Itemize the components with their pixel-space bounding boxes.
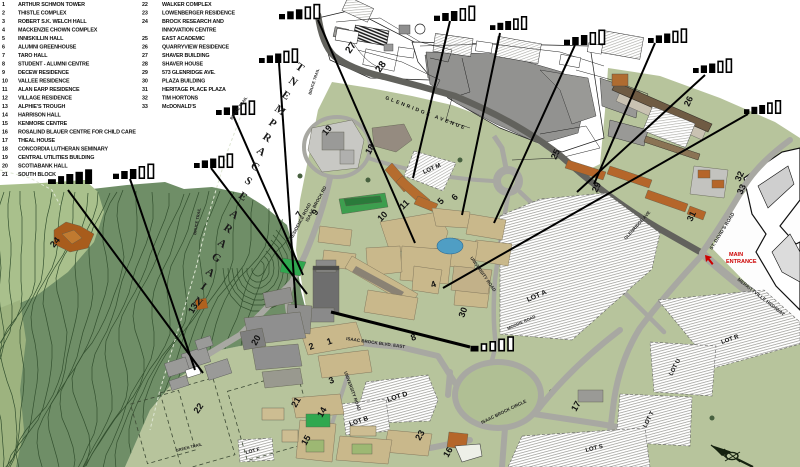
svg-text:HERITAGE PLACE PLAZA: HERITAGE PLACE PLAZA	[162, 87, 226, 93]
svg-text:28: 28	[142, 61, 148, 67]
svg-text:THEAL HOUSE: THEAL HOUSE	[18, 138, 55, 144]
svg-text:18: 18	[2, 146, 8, 152]
svg-text:ALPHIE'S TROUGH: ALPHIE'S TROUGH	[18, 104, 66, 110]
svg-text:4: 4	[2, 27, 5, 33]
svg-text:QUARRYVIEW RESIDENCE: QUARRYVIEW RESIDENCE	[162, 44, 229, 50]
svg-text:CENTRAL UTILITIES BUILDING: CENTRAL UTILITIES BUILDING	[18, 155, 94, 161]
svg-text:32: 32	[142, 95, 148, 101]
svg-text:INNOVATION CENTRE: INNOVATION CENTRE	[162, 27, 217, 33]
svg-text:ALUMNI GREENHOUSE: ALUMNI GREENHOUSE	[18, 44, 77, 50]
svg-text:ALAN EARP RESIDENCE: ALAN EARP RESIDENCE	[18, 87, 80, 93]
svg-text:THISTLE COMPLEX: THISTLE COMPLEX	[18, 10, 67, 16]
svg-text:3: 3	[2, 19, 5, 25]
svg-text:TIM HORTONS: TIM HORTONS	[162, 95, 199, 101]
svg-text:2: 2	[2, 10, 5, 16]
svg-text:DECEW RESIDENCE: DECEW RESIDENCE	[18, 70, 69, 76]
svg-text:6: 6	[2, 44, 5, 50]
svg-text:EAST ACADEMIC: EAST ACADEMIC	[162, 36, 205, 42]
svg-text:17: 17	[2, 138, 8, 144]
svg-text:TARO HALL: TARO HALL	[18, 53, 48, 59]
svg-text:27: 27	[142, 53, 148, 59]
svg-text:ROBERT S.K. WELCH HALL: ROBERT S.K. WELCH HALL	[18, 19, 87, 25]
svg-text:INNISKILLIN HALL: INNISKILLIN HALL	[18, 36, 64, 42]
svg-text:14: 14	[2, 112, 8, 118]
svg-text:13: 13	[2, 104, 8, 110]
svg-text:25: 25	[142, 36, 148, 42]
svg-text:SCOTIABANK HALL: SCOTIABANK HALL	[18, 163, 68, 169]
svg-text:VALLEE RESIDENCE: VALLEE RESIDENCE	[18, 78, 70, 84]
svg-text:31: 31	[142, 87, 148, 93]
svg-text:11: 11	[2, 87, 8, 93]
svg-text:10: 10	[2, 78, 8, 84]
svg-text:21: 21	[2, 172, 8, 178]
svg-text:BROCK RESEARCH AND: BROCK RESEARCH AND	[162, 19, 224, 25]
svg-text:5: 5	[2, 36, 5, 42]
svg-text:WALKER COMPLEX: WALKER COMPLEX	[162, 2, 212, 8]
svg-text:24: 24	[142, 19, 148, 25]
svg-text:McDONALD'S: McDONALD'S	[162, 104, 196, 110]
svg-text:HARRISON HALL: HARRISON HALL	[18, 112, 62, 118]
svg-text:16: 16	[2, 129, 8, 135]
svg-text:ARTHUR SCHMON TOWER: ARTHUR SCHMON TOWER	[18, 2, 85, 8]
svg-text:KENMORE CENTRE: KENMORE CENTRE	[18, 121, 68, 127]
svg-text:20: 20	[2, 163, 8, 169]
svg-text:CONCORDIA LUTHERAN SEMINARY: CONCORDIA LUTHERAN SEMINARY	[18, 146, 108, 152]
svg-text:23: 23	[142, 10, 148, 16]
svg-text:26: 26	[142, 44, 148, 50]
svg-text:12: 12	[2, 95, 8, 101]
svg-text:VILLAGE RESIDENCE: VILLAGE RESIDENCE	[18, 95, 72, 101]
svg-text:573 GLENRIDGE AVE.: 573 GLENRIDGE AVE.	[162, 70, 216, 76]
svg-text:LOWENBERGER RESIDENCE: LOWENBERGER RESIDENCE	[162, 10, 235, 16]
svg-text:MAIN: MAIN	[729, 252, 743, 258]
svg-text:22: 22	[142, 2, 148, 8]
svg-text:STUDENT - ALUMNI CENTRE: STUDENT - ALUMNI CENTRE	[18, 61, 90, 67]
svg-text:ROSALIND BLAUER CENTRE FOR CHI: ROSALIND BLAUER CENTRE FOR CHILD CARE	[18, 129, 136, 135]
svg-text:SHAVER HOUSE: SHAVER HOUSE	[162, 61, 203, 67]
svg-text:29: 29	[142, 70, 148, 76]
svg-text:MACKENZIE CHOWN COMPLEX: MACKENZIE CHOWN COMPLEX	[18, 27, 98, 33]
svg-text:SOUTH BLOCK: SOUTH BLOCK	[18, 172, 56, 178]
svg-text:7: 7	[2, 53, 5, 59]
svg-text:15: 15	[2, 121, 8, 127]
svg-text:19: 19	[2, 155, 8, 161]
svg-text:8: 8	[2, 61, 5, 67]
svg-text:SHAVER BUILDING: SHAVER BUILDING	[162, 53, 209, 59]
svg-text:1: 1	[2, 2, 5, 8]
svg-text:PLAZA BUILDING: PLAZA BUILDING	[162, 78, 205, 84]
svg-text:33: 33	[142, 104, 148, 110]
svg-text:30: 30	[142, 78, 148, 84]
svg-text:ENTRANCE: ENTRANCE	[726, 259, 757, 265]
svg-text:9: 9	[2, 70, 5, 76]
